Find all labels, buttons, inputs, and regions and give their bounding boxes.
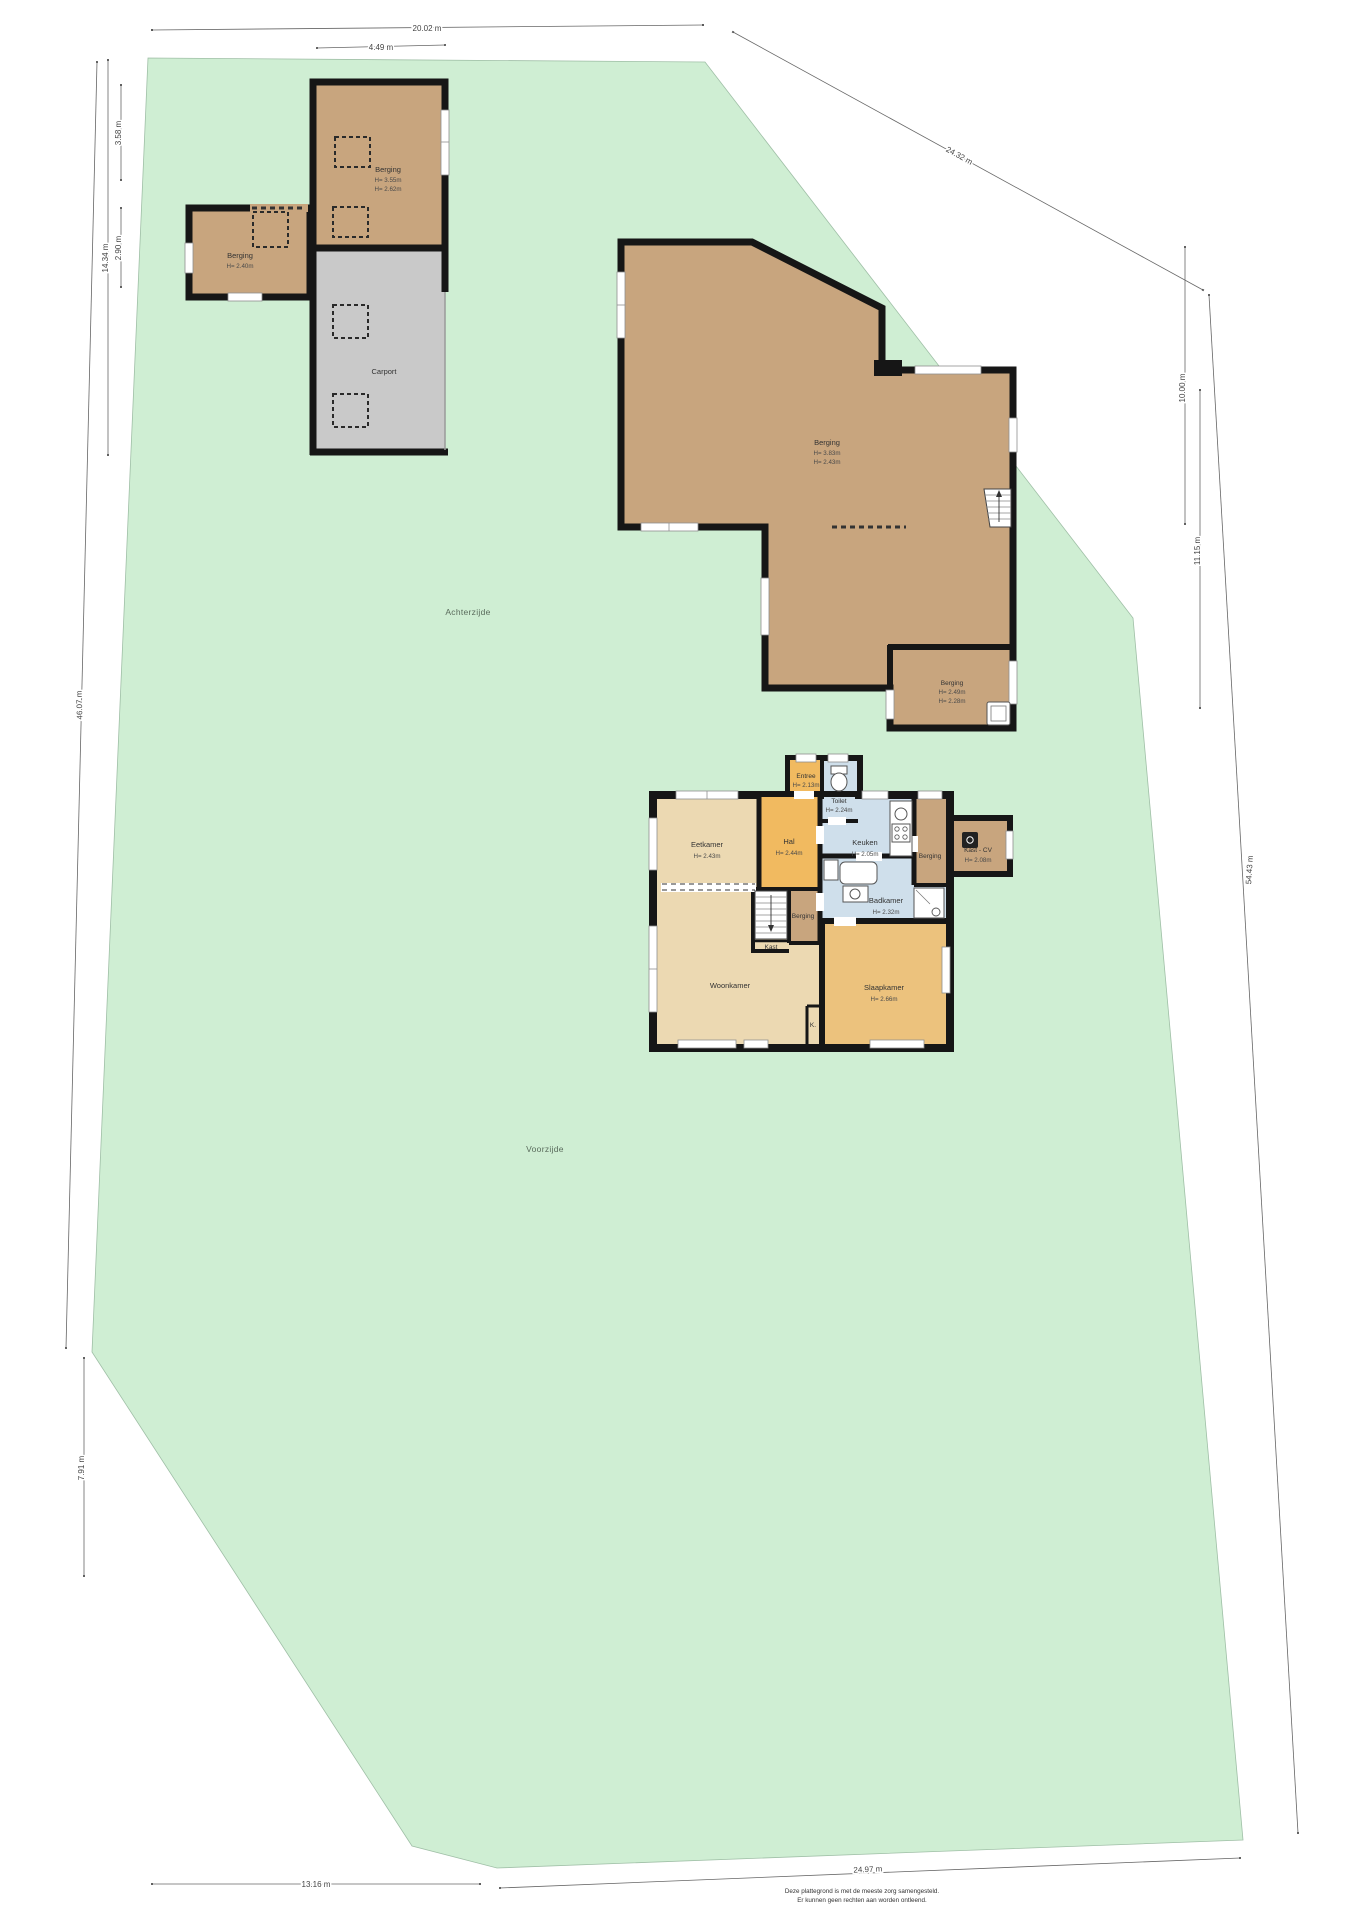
dim-ne-diagonal: 24.32 m [944,145,974,167]
dim-right-long: 54.43 m [1244,855,1255,885]
barn-ne-h2: H= 2.43m [814,459,841,466]
label-voorzijde: Voorzijde [526,1144,564,1154]
label-badkamer: Badkamer [869,896,904,905]
barn-ne-h1: H= 3.83m [814,450,841,457]
label-keuken: Keuken [852,838,877,847]
label-kast-cv-h: H= 2.08m [965,857,992,864]
label-k-closet: K. [810,1022,816,1029]
dim-left-lower: 7.91 m [77,1455,86,1480]
label-berging-midden: Berging [792,913,815,920]
label-toilet: Toilet [831,798,846,805]
label-achterzijde: Achterzijde [445,607,490,617]
dim-bottom-left: 13.16 m [302,1880,331,1889]
label-eetkamer-h: H= 2.43m [694,853,721,860]
carport-label: Carport [371,367,397,376]
barn-ne-annex-h1: H= 2.49m [939,689,966,696]
disclaimer-line1: Deze plattegrond is met de meeste zorg s… [785,1888,940,1895]
dim-bottom-right: 24.97 m [853,1864,883,1874]
disclaimer-line2: Er kunnen geen rechten aan worden ontlee… [797,1897,927,1904]
room-berging-rechts [914,799,946,885]
toilet-fixture [831,766,847,791]
house-stairs [755,891,787,939]
dim-top-barn: 4.49 m [369,43,394,52]
label-entree-h: H= 2.13m [793,782,820,789]
outbuilding-carport [310,245,448,455]
barn-ne-annex-label: Berging [941,680,964,687]
dim-left-outer: 14.34 m [101,243,110,272]
dim-right-upper: 10.00 m [1178,373,1187,402]
label-eetkamer: Eetkamer [691,840,724,849]
annex-fixture [987,702,1010,725]
barn-ne-label: Berging [814,438,840,447]
shed-w-h1: H= 2.40m [227,263,254,270]
label-badkamer-h: H= 2.32m [873,909,900,916]
barn-nw-h1: H= 3.55m [375,177,402,184]
label-hal: Hal [783,837,795,846]
dim-top-main: 20.02 m [413,24,442,33]
barn-nw-label: Berging [375,165,401,174]
dim-right-mid: 11.15 m [1193,537,1202,566]
label-kast-cv: Kast - CV [964,847,992,854]
dim-left-upper: 3.58 m [114,120,123,145]
label-kast: Kast [764,944,777,951]
label-berging-rechts: Berging [919,853,942,860]
label-woonkamer: Woonkamer [710,981,751,990]
barn-ne-annex-h2: H= 2.28m [939,698,966,705]
label-slaapkamer: Slaapkamer [864,983,905,992]
dim-left-mid: 2.90 m [114,235,123,260]
cv-unit-icon [962,832,978,848]
kitchen-counter [890,801,912,856]
barn-nw-h2: H= 2.62m [375,186,402,193]
label-slaapkamer-h: H= 2.66m [871,996,898,1003]
dim-left-long: 46.07 m [75,690,85,719]
floorplan-canvas: 20.02 m 4.49 m 24.32 m 54.43 m 10.00 m 1… [0,0,1358,1920]
site-plan-svg: 20.02 m 4.49 m 24.32 m 54.43 m 10.00 m 1… [0,0,1358,1920]
label-keuken-h: H= 2.05m [852,851,879,858]
label-entree: Entree [796,773,816,780]
label-hal-h: H= 2.44m [776,850,803,857]
shed-w-label: Berging [227,251,253,260]
label-toilet-h: H= 2.24m [826,807,853,814]
